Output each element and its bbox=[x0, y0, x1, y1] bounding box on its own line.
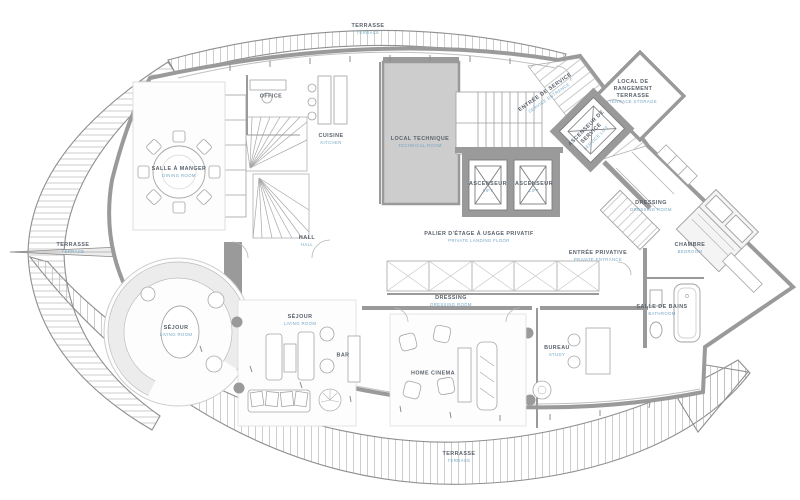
elevator-block bbox=[462, 153, 560, 217]
floor-plan: TERRASSETERRACETERRASSETERRACETERRASSETE… bbox=[0, 0, 800, 500]
technical-room bbox=[383, 62, 459, 204]
fan-stair-lower bbox=[253, 174, 309, 238]
fan-stair-upper bbox=[243, 117, 307, 171]
floor-plan-drawing bbox=[0, 0, 800, 500]
wardrobe-row bbox=[387, 261, 599, 294]
dining-room bbox=[133, 82, 225, 230]
prow-needle bbox=[10, 247, 120, 257]
service-stair bbox=[456, 92, 542, 154]
plant bbox=[319, 389, 341, 411]
home-cinema-room bbox=[390, 314, 526, 426]
living-room-2 bbox=[238, 300, 360, 426]
